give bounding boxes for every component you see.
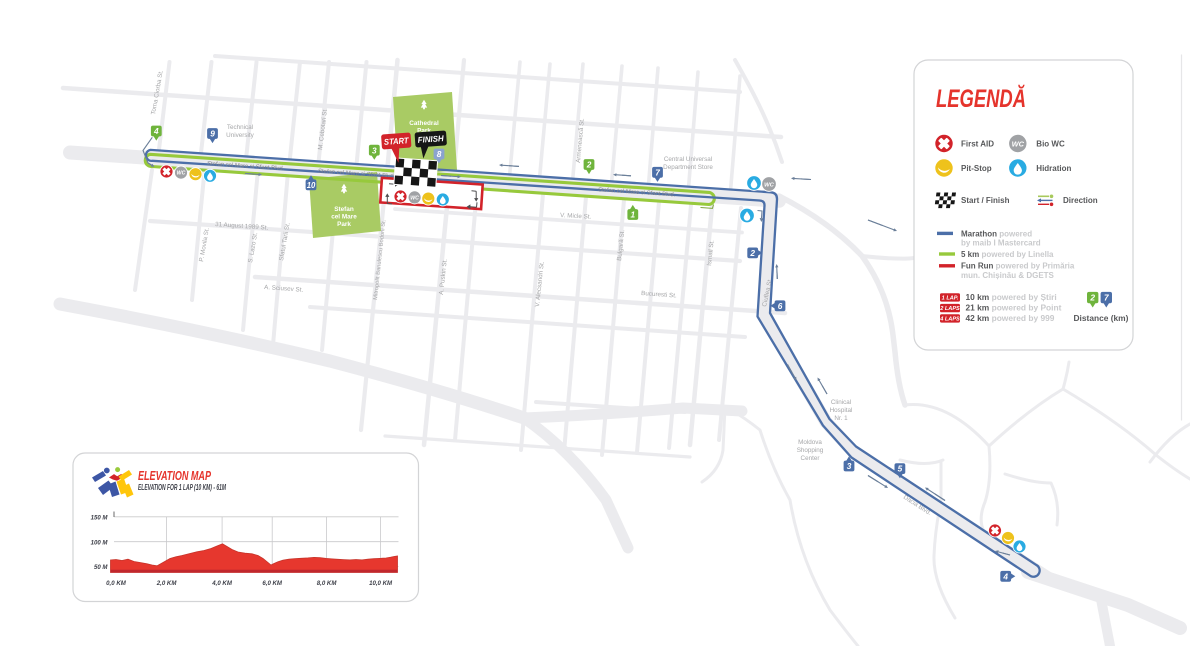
svg-text:Bio WC: Bio WC [1036, 139, 1065, 148]
svg-text:9: 9 [210, 129, 215, 139]
svg-text:6: 6 [778, 301, 783, 311]
svg-text:Marathon powered: Marathon powered [961, 229, 1032, 238]
svg-text:150 M: 150 M [91, 514, 109, 521]
svg-text:cel Mare: cel Mare [331, 214, 357, 221]
svg-text:Start / Finish: Start / Finish [961, 196, 1010, 205]
svg-text:Stefan: Stefan [334, 206, 354, 213]
svg-text:Department Store: Department Store [663, 164, 713, 171]
svg-text:5: 5 [898, 464, 903, 474]
svg-text:50 M: 50 M [94, 564, 108, 571]
svg-text:Central Universal: Central Universal [664, 156, 712, 163]
svg-text:8: 8 [437, 149, 442, 159]
svg-text:10,0 KM: 10,0 KM [369, 580, 393, 587]
svg-text:2: 2 [586, 160, 592, 170]
svg-text:6,0 KM: 6,0 KM [262, 580, 283, 587]
svg-text:42 km powered by 999: 42 km powered by 999 [966, 313, 1055, 323]
svg-text:8,0 KM: 8,0 KM [317, 580, 338, 587]
svg-text:7: 7 [1104, 293, 1109, 303]
svg-text:Distance (km): Distance (km) [1074, 313, 1129, 323]
svg-text:7: 7 [655, 167, 660, 177]
svg-text:Nr. 1: Nr. 1 [834, 415, 848, 422]
svg-text:START: START [384, 135, 410, 147]
svg-text:3: 3 [372, 145, 377, 155]
svg-text:4,0 KM: 4,0 KM [211, 580, 233, 587]
svg-text:Direction: Direction [1063, 196, 1098, 205]
svg-text:First AID: First AID [961, 139, 994, 148]
svg-text:10 km powered by Știri: 10 km powered by Știri [966, 292, 1057, 302]
svg-text:Technical: Technical [227, 124, 253, 131]
svg-text:1: 1 [630, 210, 635, 220]
svg-text:10: 10 [307, 180, 316, 190]
svg-text:Center: Center [801, 455, 820, 462]
svg-text:0,0 KM: 0,0 KM [106, 580, 127, 587]
svg-text:mun. Chișinău & DGETS: mun. Chișinău & DGETS [961, 271, 1055, 280]
svg-text:2: 2 [1089, 293, 1095, 303]
svg-text:2: 2 [749, 248, 755, 258]
svg-text:by maib I Mastercard: by maib I Mastercard [961, 239, 1041, 248]
svg-text:Moldova: Moldova [798, 439, 822, 446]
svg-text:LEGENDĂ: LEGENDĂ [936, 84, 1026, 113]
svg-text:University: University [226, 132, 254, 139]
svg-text:4: 4 [153, 126, 159, 136]
svg-text:5 km powered by Linella: 5 km powered by Linella [961, 250, 1054, 259]
svg-text:Hospital: Hospital [830, 407, 853, 414]
svg-text:ELEVATION FOR 1 LAP (10 KM) -: ELEVATION FOR 1 LAP (10 KM) - 61M [138, 483, 226, 492]
svg-text:Pit-Stop: Pit-Stop [961, 164, 992, 173]
svg-text:Fun Run powered by Primăria: Fun Run powered by Primăria [961, 262, 1075, 271]
svg-text:Hidration: Hidration [1036, 164, 1071, 173]
svg-text:Cathedral: Cathedral [409, 120, 439, 127]
svg-text:ELEVATION MAP: ELEVATION MAP [138, 469, 211, 483]
svg-text:4 LAPS: 4 LAPS [939, 317, 960, 323]
svg-text:2 LAPS: 2 LAPS [939, 306, 960, 312]
svg-text:4: 4 [1002, 571, 1008, 581]
svg-text:3: 3 [847, 461, 852, 471]
svg-text:Shopping: Shopping [797, 447, 824, 454]
svg-text:100 M: 100 M [91, 539, 109, 546]
svg-text:Clinical: Clinical [831, 399, 851, 406]
svg-text:1 LAP.: 1 LAP. [942, 296, 959, 302]
svg-text:FINISH: FINISH [417, 133, 445, 145]
svg-text:2,0 KM: 2,0 KM [156, 580, 178, 587]
svg-text:21 km powered by Point: 21 km powered by Point [966, 303, 1062, 313]
svg-text:Park: Park [337, 221, 351, 228]
